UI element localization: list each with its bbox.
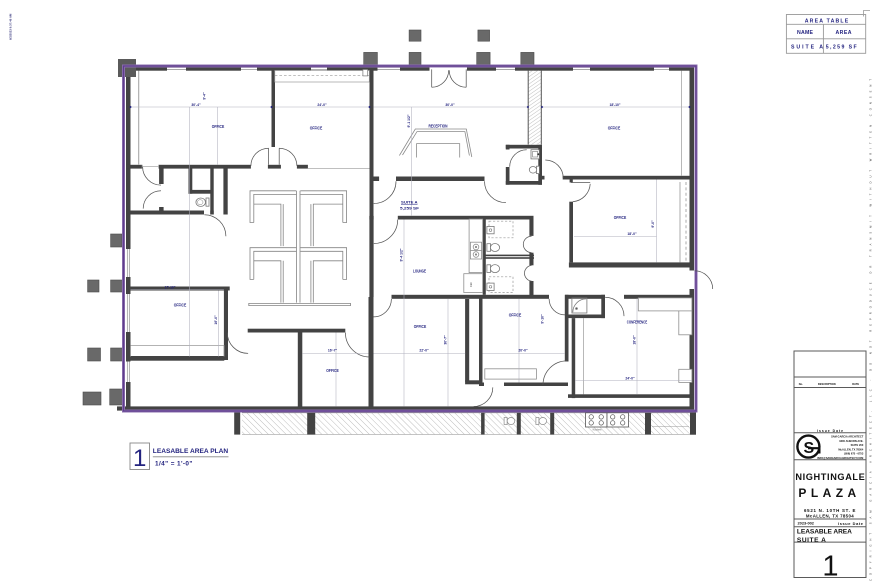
svg-text:OFFICE: OFFICE [326,368,339,373]
svg-text:SAM GARCIA ARCHITECT: SAM GARCIA ARCHITECT [831,434,864,438]
svg-text:9'-0": 9'-0" [651,220,655,228]
svg-text:Issue Date: Issue Date [838,521,864,526]
svg-text:16'-0": 16'-0" [214,315,218,325]
svg-text:6/2/2023 9:37:46 AM: 6/2/2023 9:37:46 AM [9,13,13,40]
svg-text:McALLEN, TX 78504: McALLEN, TX 78504 [838,447,863,451]
svg-text:SUITE A: SUITE A [797,537,826,544]
svg-text:20'-0": 20'-0" [518,349,528,353]
svg-text:RECEPTION: RECEPTION [429,123,448,128]
svg-text:1: 1 [133,445,146,472]
svg-text:Issue Date: Issue Date [817,429,844,433]
svg-text:18'-0": 18'-0" [627,232,637,236]
svg-text:OFFICE: OFFICE [614,215,627,220]
svg-text:NIGHTINGALE: NIGHTINGALE [795,472,864,482]
svg-text:22'-0": 22'-0" [419,349,429,353]
svg-text:30'-7": 30'-7" [444,335,448,345]
svg-text:OFFICE: OFFICE [212,124,225,129]
svg-text:9'-1 1/2": 9'-1 1/2" [407,114,411,127]
svg-text:LEASABLE AREA PLAN: LEASABLE AREA PLAN [153,448,229,455]
svg-text:OFFICE: OFFICE [414,324,427,329]
svg-text:AREA TABLE: AREA TABLE [805,18,849,24]
svg-text:6521 N. 10TH ST. E: 6521 N. 10TH ST. E [804,508,855,513]
svg-text:SUITE 200: SUITE 200 [851,443,864,447]
svg-text:16'-7": 16'-7" [328,349,338,353]
svg-text:24'-0": 24'-0" [317,103,327,107]
svg-text:3300 AUBURN AVE.: 3300 AUBURN AVE. [839,439,863,443]
svg-text:18'-0": 18'-0" [633,335,637,345]
svg-text:SUITE A: SUITE A [791,44,823,50]
svg-text:LEASABLE AREA: LEASABLE AREA [797,529,852,536]
svg-text:OFFICE: OFFICE [174,302,187,307]
svg-text:No.: No. [799,382,803,386]
svg-text:9'-4 1/2": 9'-4 1/2" [400,248,404,261]
svg-text:DESCRIPTION: DESCRIPTION [818,382,836,386]
svg-text:17'-10": 17'-10" [164,285,175,289]
svg-text:REF: REF [469,281,473,287]
svg-text:30'-4": 30'-4" [191,103,201,107]
svg-text:SUITE A: SUITE A [401,200,418,204]
svg-text:1/4" = 1'-0": 1/4" = 1'-0" [155,461,193,468]
svg-text:18'-10": 18'-10" [609,103,620,107]
svg-text:OFFICE: OFFICE [509,312,522,317]
svg-text:9'-4": 9'-4" [203,92,207,100]
svg-text:OFFICE: OFFICE [310,126,323,131]
svg-text:Kitchen: Kitchen [593,428,602,432]
svg-text:1: 1 [822,551,838,583]
svg-text:30'-0": 30'-0" [445,103,455,107]
svg-text:OFFICE: OFFICE [608,126,621,131]
svg-text:2023-002: 2023-002 [798,521,815,526]
svg-text:AREA: AREA [836,30,852,36]
svg-text:INFO@SAMGARCIAARCHITECT.COM: INFO@SAMGARCIAARCHITECT.COM [817,456,863,460]
svg-text:LOUNGE: LOUNGE [413,268,426,273]
svg-text:5,259 SF: 5,259 SF [826,44,857,50]
svg-text:DATE: DATE [852,382,859,386]
svg-text:McALLEN, TX 78504: McALLEN, TX 78504 [806,513,854,518]
svg-text:24'-0": 24'-0" [625,376,635,380]
svg-text:9'-10": 9'-10" [541,314,545,324]
svg-text:5,259 SF: 5,259 SF [400,207,420,211]
svg-text:NAME: NAME [797,30,814,36]
svg-text:(956) 675 - 6753: (956) 675 - 6753 [844,452,864,456]
svg-text:CONFERENCE: CONFERENCE [627,319,648,324]
